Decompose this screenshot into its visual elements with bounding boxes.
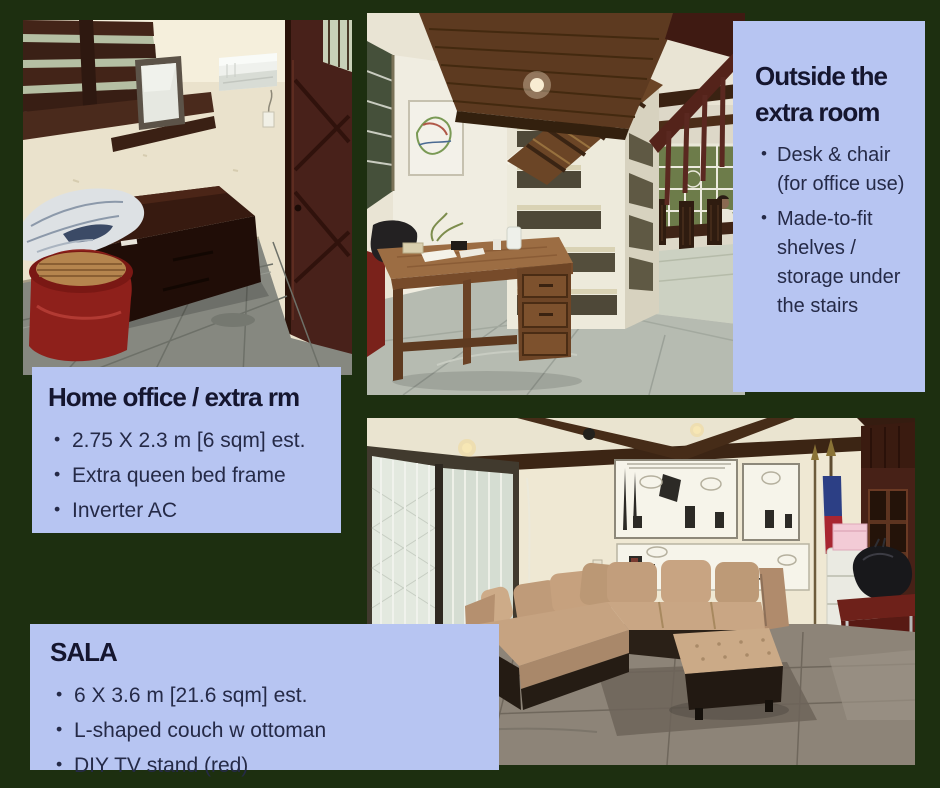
pink-box (833, 524, 867, 550)
bullet-item: 6 X 3.6 m [21.6 sqm] est. (50, 681, 493, 711)
panel-title: Outside the extra room (755, 59, 917, 131)
door (285, 20, 352, 362)
door-knob (295, 205, 302, 212)
recessed-light (530, 78, 544, 92)
bullet-list: 2.75 X 2.3 m [6 sqm] est.Extra queen bed… (48, 426, 335, 525)
bullet-item: Extra queen bed frame (48, 461, 335, 491)
panel-home-office: Home office / extra rm 2.75 X 2.3 m [6 s… (32, 367, 341, 533)
bullet-list: 6 X 3.6 m [21.6 sqm] est.L-shaped couch … (50, 681, 493, 780)
desk-drawers (523, 275, 567, 355)
ottoman (669, 628, 789, 720)
bullet-item: Made-to-fit shelves / storage under the … (755, 205, 917, 321)
bullet-item: 2.75 X 2.3 m [6 sqm] est. (48, 426, 335, 456)
glass-cabinet (135, 56, 185, 130)
red-chair-back (367, 251, 385, 357)
listing-collage: Outside the extra room Desk & chair (for… (0, 0, 940, 788)
panel-title: SALA (50, 635, 493, 671)
panel-sala: SALA 6 X 3.6 m [21.6 sqm] est.L-shaped c… (30, 624, 499, 770)
photo-under-stairs (367, 13, 745, 395)
bullet-item: Desk & chair (for office use) (755, 141, 917, 199)
photo-extra-room (23, 20, 352, 375)
ceiling-sensor (583, 428, 595, 440)
bullet-item: Inverter AC (48, 496, 335, 526)
bullet-item: DIY TV stand (red) (50, 751, 493, 781)
wall-artwork (409, 101, 463, 175)
barred-window (367, 41, 393, 209)
recessed-light (693, 426, 701, 434)
panel-outside-extra-room: Outside the extra room Desk & chair (for… (733, 21, 925, 392)
panel-title: Home office / extra rm (48, 380, 335, 416)
right-seat (607, 602, 767, 630)
red-drum-table (29, 249, 133, 361)
bullet-list: Desk & chair (for office use)Made-to-fit… (755, 141, 917, 321)
bullet-item: L-shaped couch w ottoman (50, 716, 493, 746)
recessed-light (462, 443, 472, 453)
